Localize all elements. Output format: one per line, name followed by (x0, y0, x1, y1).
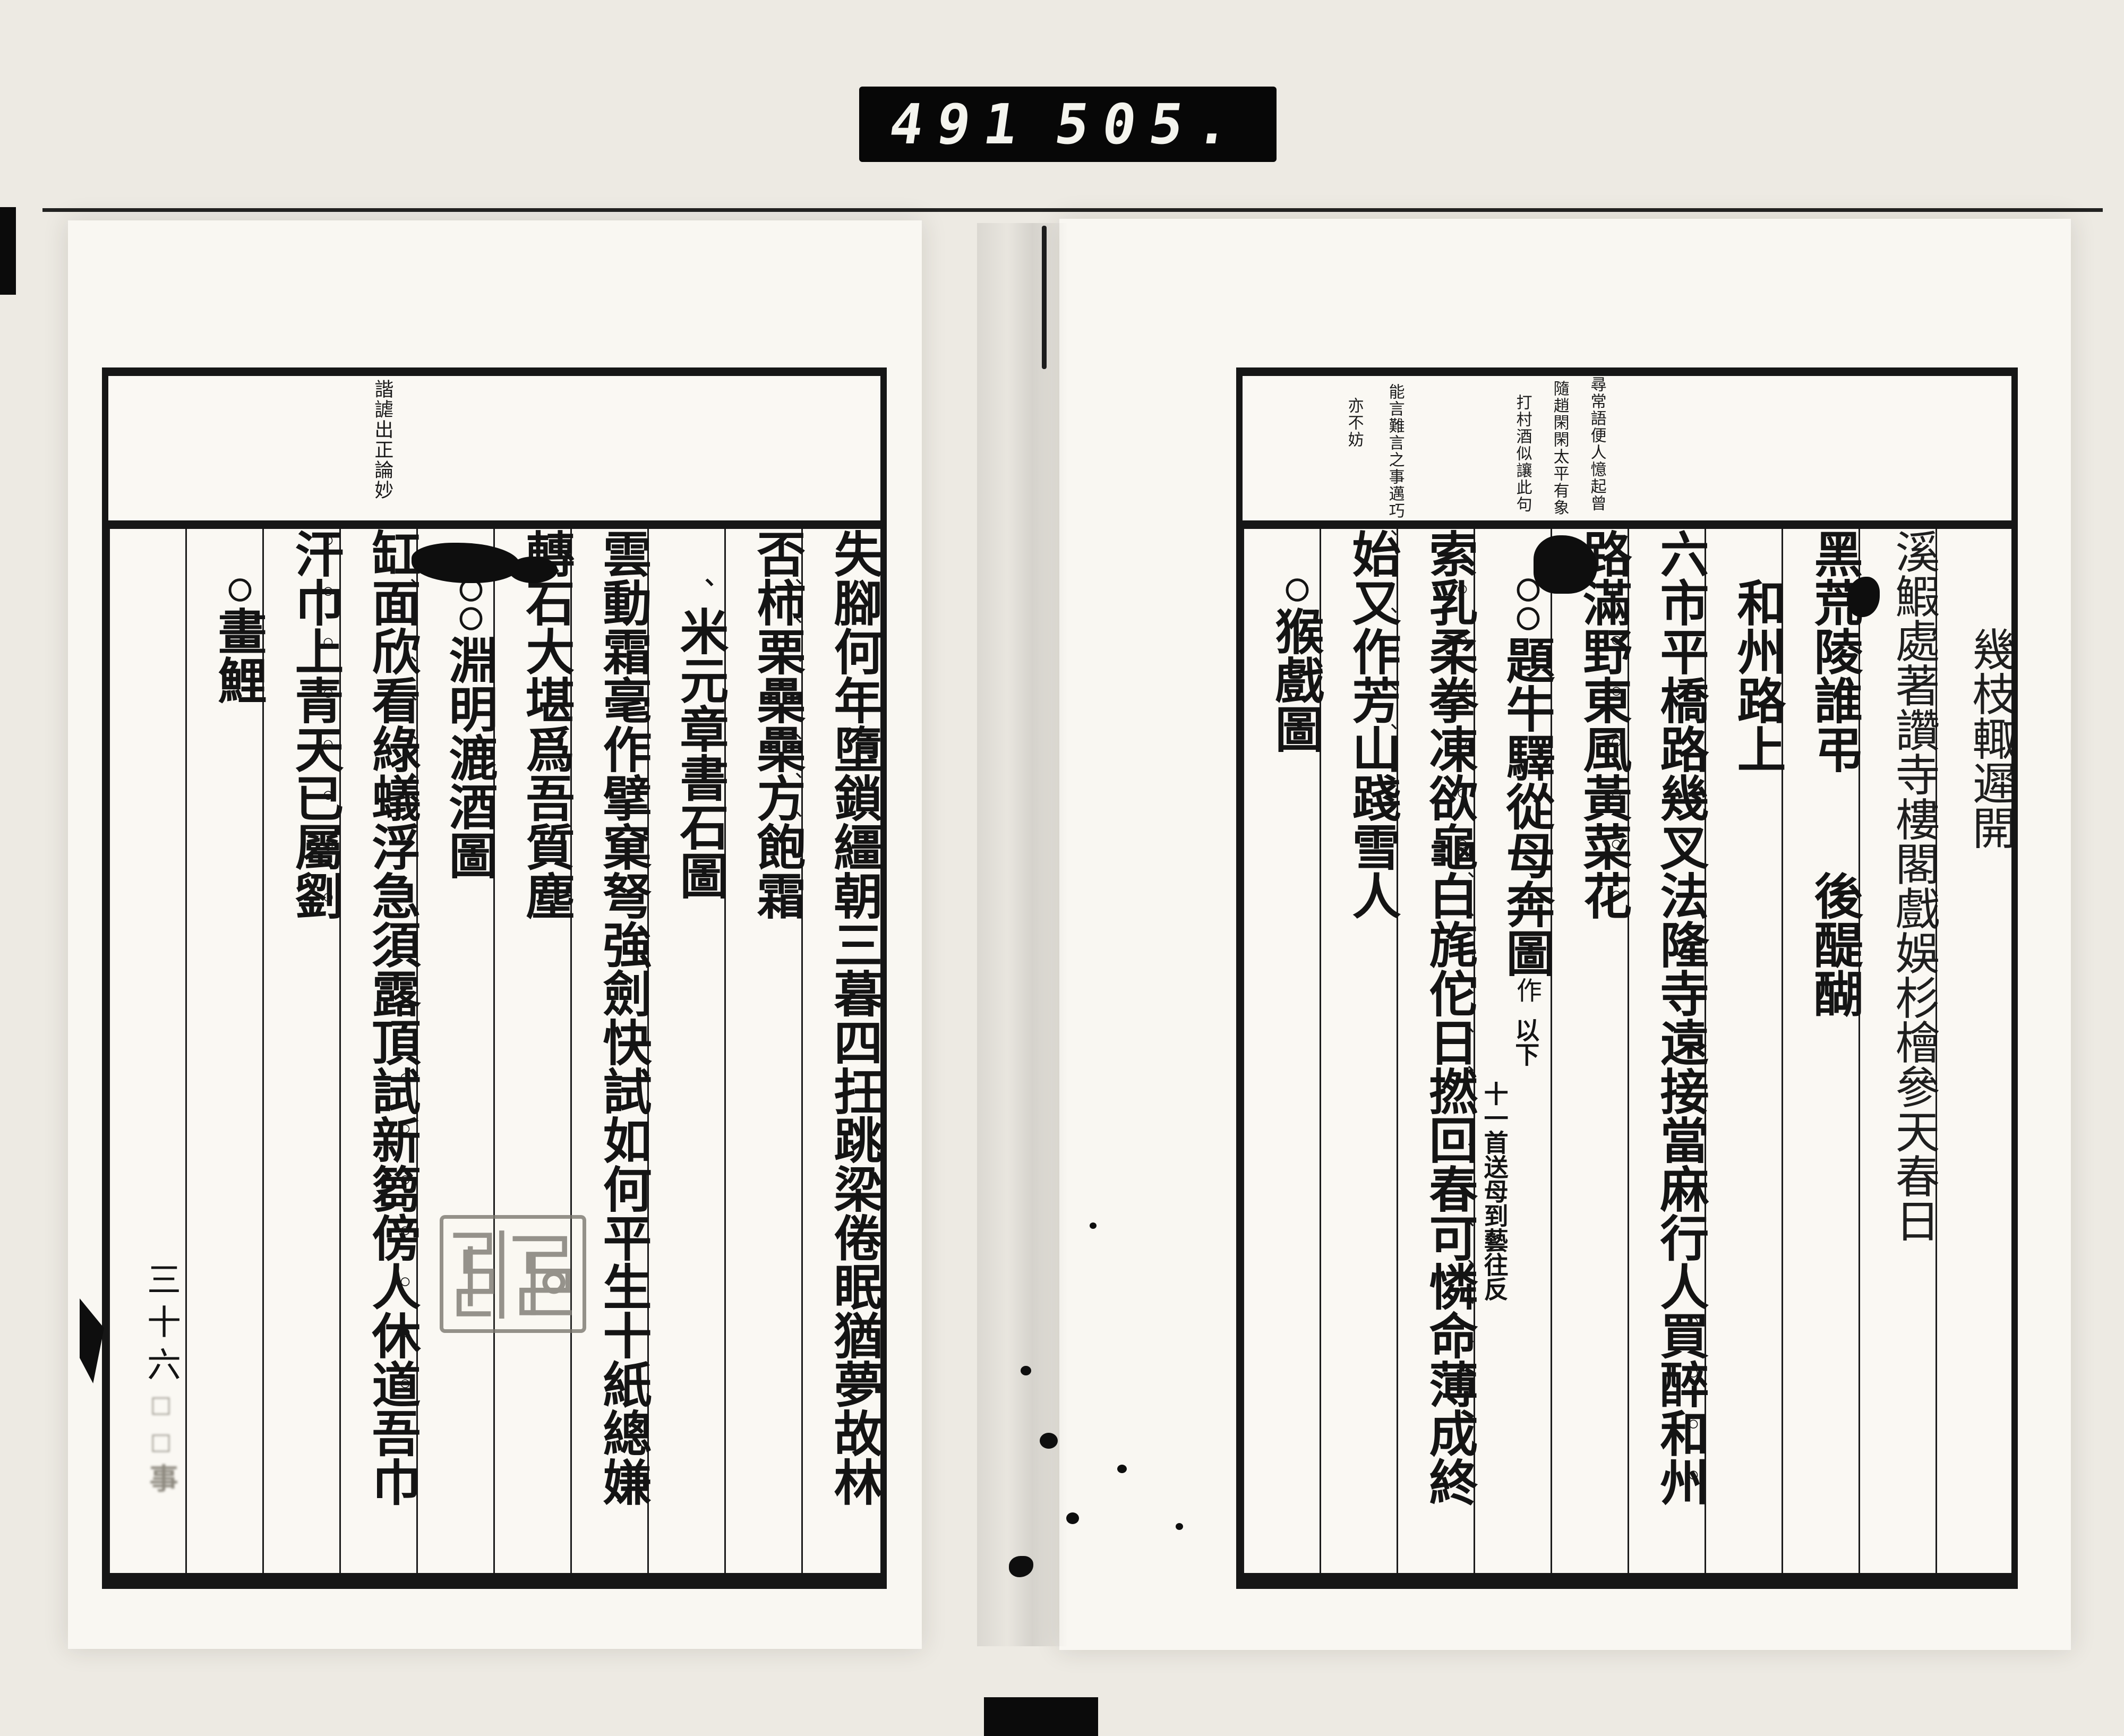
right-head-register: 尋常語便人憶起曾隨趙閑閑太平有象打村酒似讓此句能言難言之事邁巧亦不妨 (1243, 376, 2011, 529)
scan-edge-line (42, 208, 2103, 212)
title-circle-mark: 〇 (1282, 578, 1309, 606)
binding-gutter-line (1042, 226, 1047, 369)
emphasis-marks: ○○○○○○○ (1606, 578, 1626, 935)
poem-title-column: 、米元章書石圖 (647, 529, 724, 1573)
poem-text-column: 幾枝輙遲開 (1935, 529, 2012, 1573)
margin-annotation: 打村酒似讓此句 (1513, 394, 1531, 513)
poem-text-column: 六市平橋路幾叉法隆寺遠接當麻行人買醉和州○○○○ (1628, 529, 1705, 1573)
emphasis-marks: 、、、、、、、、、、、、、 (1452, 871, 1472, 1385)
title-circle-mark: 〇 (225, 578, 252, 606)
poem-text-column: 雲動霜毫作擘窠弩強劍快試如何平生十紙總嫌 (570, 529, 647, 1573)
right-page-frame: 尋常語便人憶起曾隨趙閑閑太平有象打村酒似讓此句能言難言之事邁巧亦不妨 幾枝輙遲開… (1236, 367, 2018, 1589)
poem-text-column: 失腳何年墮鎖繮朝三暮四抂跳梁倦眠猶夢故林 (801, 529, 878, 1573)
emphasis-marks: 、、、、、、、、 (1375, 529, 1395, 849)
emphasis-marks: 、、、、、、 (395, 578, 415, 820)
ink-speckle (1040, 1433, 1058, 1449)
film-frame-counter: 491 505. (859, 87, 1277, 162)
emphasis-marks: ○○○○○○○○ (318, 529, 338, 937)
counter-right-value: 505. (1051, 92, 1248, 157)
emphasis-marks: ○○○○○○ (1452, 578, 1472, 884)
title-circle-mark: 〇〇 (456, 578, 483, 635)
column-text: 幾枝輙遲開 (1966, 627, 2015, 850)
ink-blot (509, 557, 558, 583)
ink-speckle (1090, 1222, 1097, 1229)
ink-speckle (1117, 1465, 1127, 1473)
ink-speckle (1176, 1523, 1183, 1530)
poem-title-column: 〇畫鯉 (185, 529, 262, 1573)
poem-text-column: 黑荒陵誰弔 後醍醐 (1782, 529, 1858, 1573)
column-text: 轉石大堪爲吾質塵 (519, 529, 573, 920)
margin-annotation: 亦不妨 (1345, 397, 1363, 448)
ink-speckle (1021, 1366, 1031, 1375)
column-text: 猴戲圖 (1268, 606, 1322, 753)
emphasis-marks: 、、、、、、、 (780, 578, 800, 859)
collector-seal-stamp (440, 1215, 586, 1333)
column-text: 題牛驛從母奔圖 (1499, 635, 1553, 977)
title-circle-mark: 〇〇 (1513, 578, 1540, 635)
column-text: 和州路上 (1730, 578, 1784, 773)
interlinear-note: 以下十一首送母到藝往反 (1476, 1017, 1538, 1301)
poem-title-column: 和州路上 (1705, 529, 1782, 1573)
poem-text-column: 路滿野東風黃菜花○○○○○○○ (1551, 529, 1628, 1573)
column-text: 雲動霜毫作擘窠弩強劍快試如何平生十紙總嫌 (596, 529, 650, 1506)
column-text: 失腳何年墮鎖繮朝三暮四抂跳梁倦眠猶夢故林 (827, 529, 881, 1506)
seal-script-glyphs (443, 1219, 583, 1329)
margin-annotation: 諧謔出正論妙 (372, 379, 393, 500)
poem-title-column: 〇猴戲圖 (1243, 529, 1320, 1573)
right-text-area: 幾枝輙遲開溪鰕處著讚寺樓閣戲娛杉檜參天春日黑荒陵誰弔 後醍醐和州路上六市平橋路幾… (1243, 529, 2012, 1573)
poem-text-column: 始又作芳山踐雪人、、、、、、、、 (1320, 529, 1397, 1573)
margin-annotation: 能言難言之事邁巧 (1386, 383, 1404, 519)
scan-edge-mark (0, 207, 16, 295)
left-text-area: 失腳何年墮鎖繮朝三暮四抂跳梁倦眠猶夢故林否柿栗櫐櫐方飽霜、、、、、、、、米元章書… (108, 529, 878, 1573)
column-text: 三十六 (142, 1262, 180, 1389)
poem-title-column: 〇〇題牛驛從母奔圖作以下十一首送母到藝往反 (1474, 529, 1551, 1573)
poem-text-column: 汗巾上青天已屬劉○○○○○○○○ (262, 529, 339, 1573)
column-text: 米元章書石圖 (673, 606, 727, 900)
counter-left-value: 491 (885, 92, 1035, 157)
margin-annotation: 尋常語便人憶起曾 (1588, 376, 1606, 512)
folio-number-column: 三十六□□事 (108, 529, 185, 1573)
binding-gutter (977, 223, 1078, 1646)
scanned-book-spread: 491 505. 諧謔出正論妙 失腳何年墮鎖繮朝三暮四抂跳梁倦眠猶夢故林否柿栗櫐… (0, 0, 2124, 1736)
poem-text-column: 索乳柔拳凍欲龜白旄佗日撚回春可憐命薄成終○○○○○○、、、、、、、、、、、、、 (1397, 529, 1474, 1573)
ink-speckle (1066, 1512, 1079, 1524)
column-text: 淵明漉酒圖 (442, 635, 496, 879)
poem-text-column: 溪鰕處著讚寺樓閣戲娛杉檜參天春日 (1858, 529, 1935, 1573)
faded-handwriting: □□事 (145, 1389, 177, 1498)
small-suffix-char: 作 (1512, 977, 1540, 1003)
poem-text-column: 否柿栗櫐櫐方飽霜、、、、、、、 (724, 529, 801, 1573)
column-text: 溪鰕處著讚寺樓閣戲娛杉檜參天春日 (1889, 529, 1938, 1243)
title-circle-mark: 、 (687, 578, 714, 606)
poem-text-column: 轉石大堪爲吾質塵 (493, 529, 570, 1573)
poem-title-column: 〇〇淵明漉酒圖 (416, 529, 493, 1573)
margin-annotation: 隨趙閑閑太平有象 (1551, 380, 1569, 516)
column-text: 畫鯉 (211, 606, 265, 704)
scan-bottom-tab (984, 1697, 1098, 1736)
emphasis-marks: ○○○○○○○ (395, 1066, 415, 1423)
poem-text-column: 缸面欣看綠蟻浮急須露頂試新篘傍人休道吾巾、、、、、、○○○○○○○ (339, 529, 416, 1573)
left-head-register: 諧謔出正論妙 (108, 376, 880, 529)
emphasis-marks: ○○○○ (1683, 1311, 1703, 1515)
